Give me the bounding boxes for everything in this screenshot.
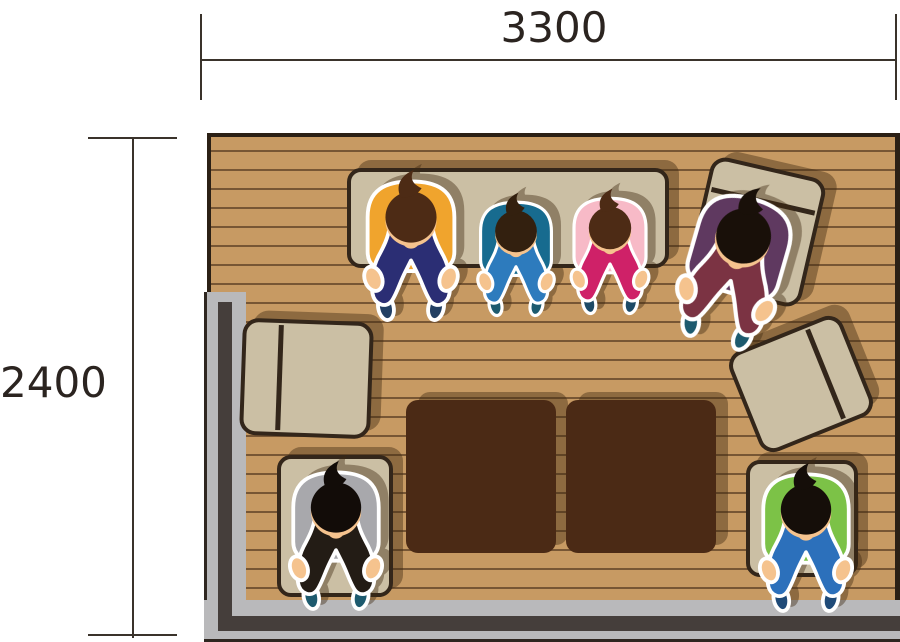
- head: [311, 482, 361, 532]
- top-dimension-label: 3300: [454, 5, 654, 51]
- person-teal-child: [472, 192, 560, 318]
- hand-left: [676, 275, 696, 303]
- person-green-adult: [751, 462, 861, 614]
- armchair-right-backrest-line: [805, 329, 846, 420]
- top-dimension-tick-right: [895, 14, 897, 100]
- head: [495, 211, 537, 253]
- head: [385, 192, 436, 243]
- head: [781, 484, 831, 534]
- armchair-left-backrest-line: [275, 325, 284, 430]
- table-left-half: [406, 400, 556, 553]
- floor-plan-diagram: 3300 2400: [0, 0, 900, 642]
- wall-bottom-dark-stripe: [218, 616, 900, 631]
- left-dimension-line: [132, 137, 134, 638]
- wall-left-dark-stripe: [218, 302, 232, 631]
- top-dimension-line: [201, 59, 897, 61]
- person-gray-adult: [281, 460, 391, 612]
- person-pink-child: [565, 188, 655, 316]
- armchair-left: [239, 318, 374, 440]
- head: [589, 207, 631, 249]
- left-dimension-label: 2400: [0, 360, 104, 406]
- person-yellow-adult: [358, 164, 464, 328]
- top-dimension-tick-left: [200, 14, 202, 100]
- table-right-half: [566, 400, 716, 553]
